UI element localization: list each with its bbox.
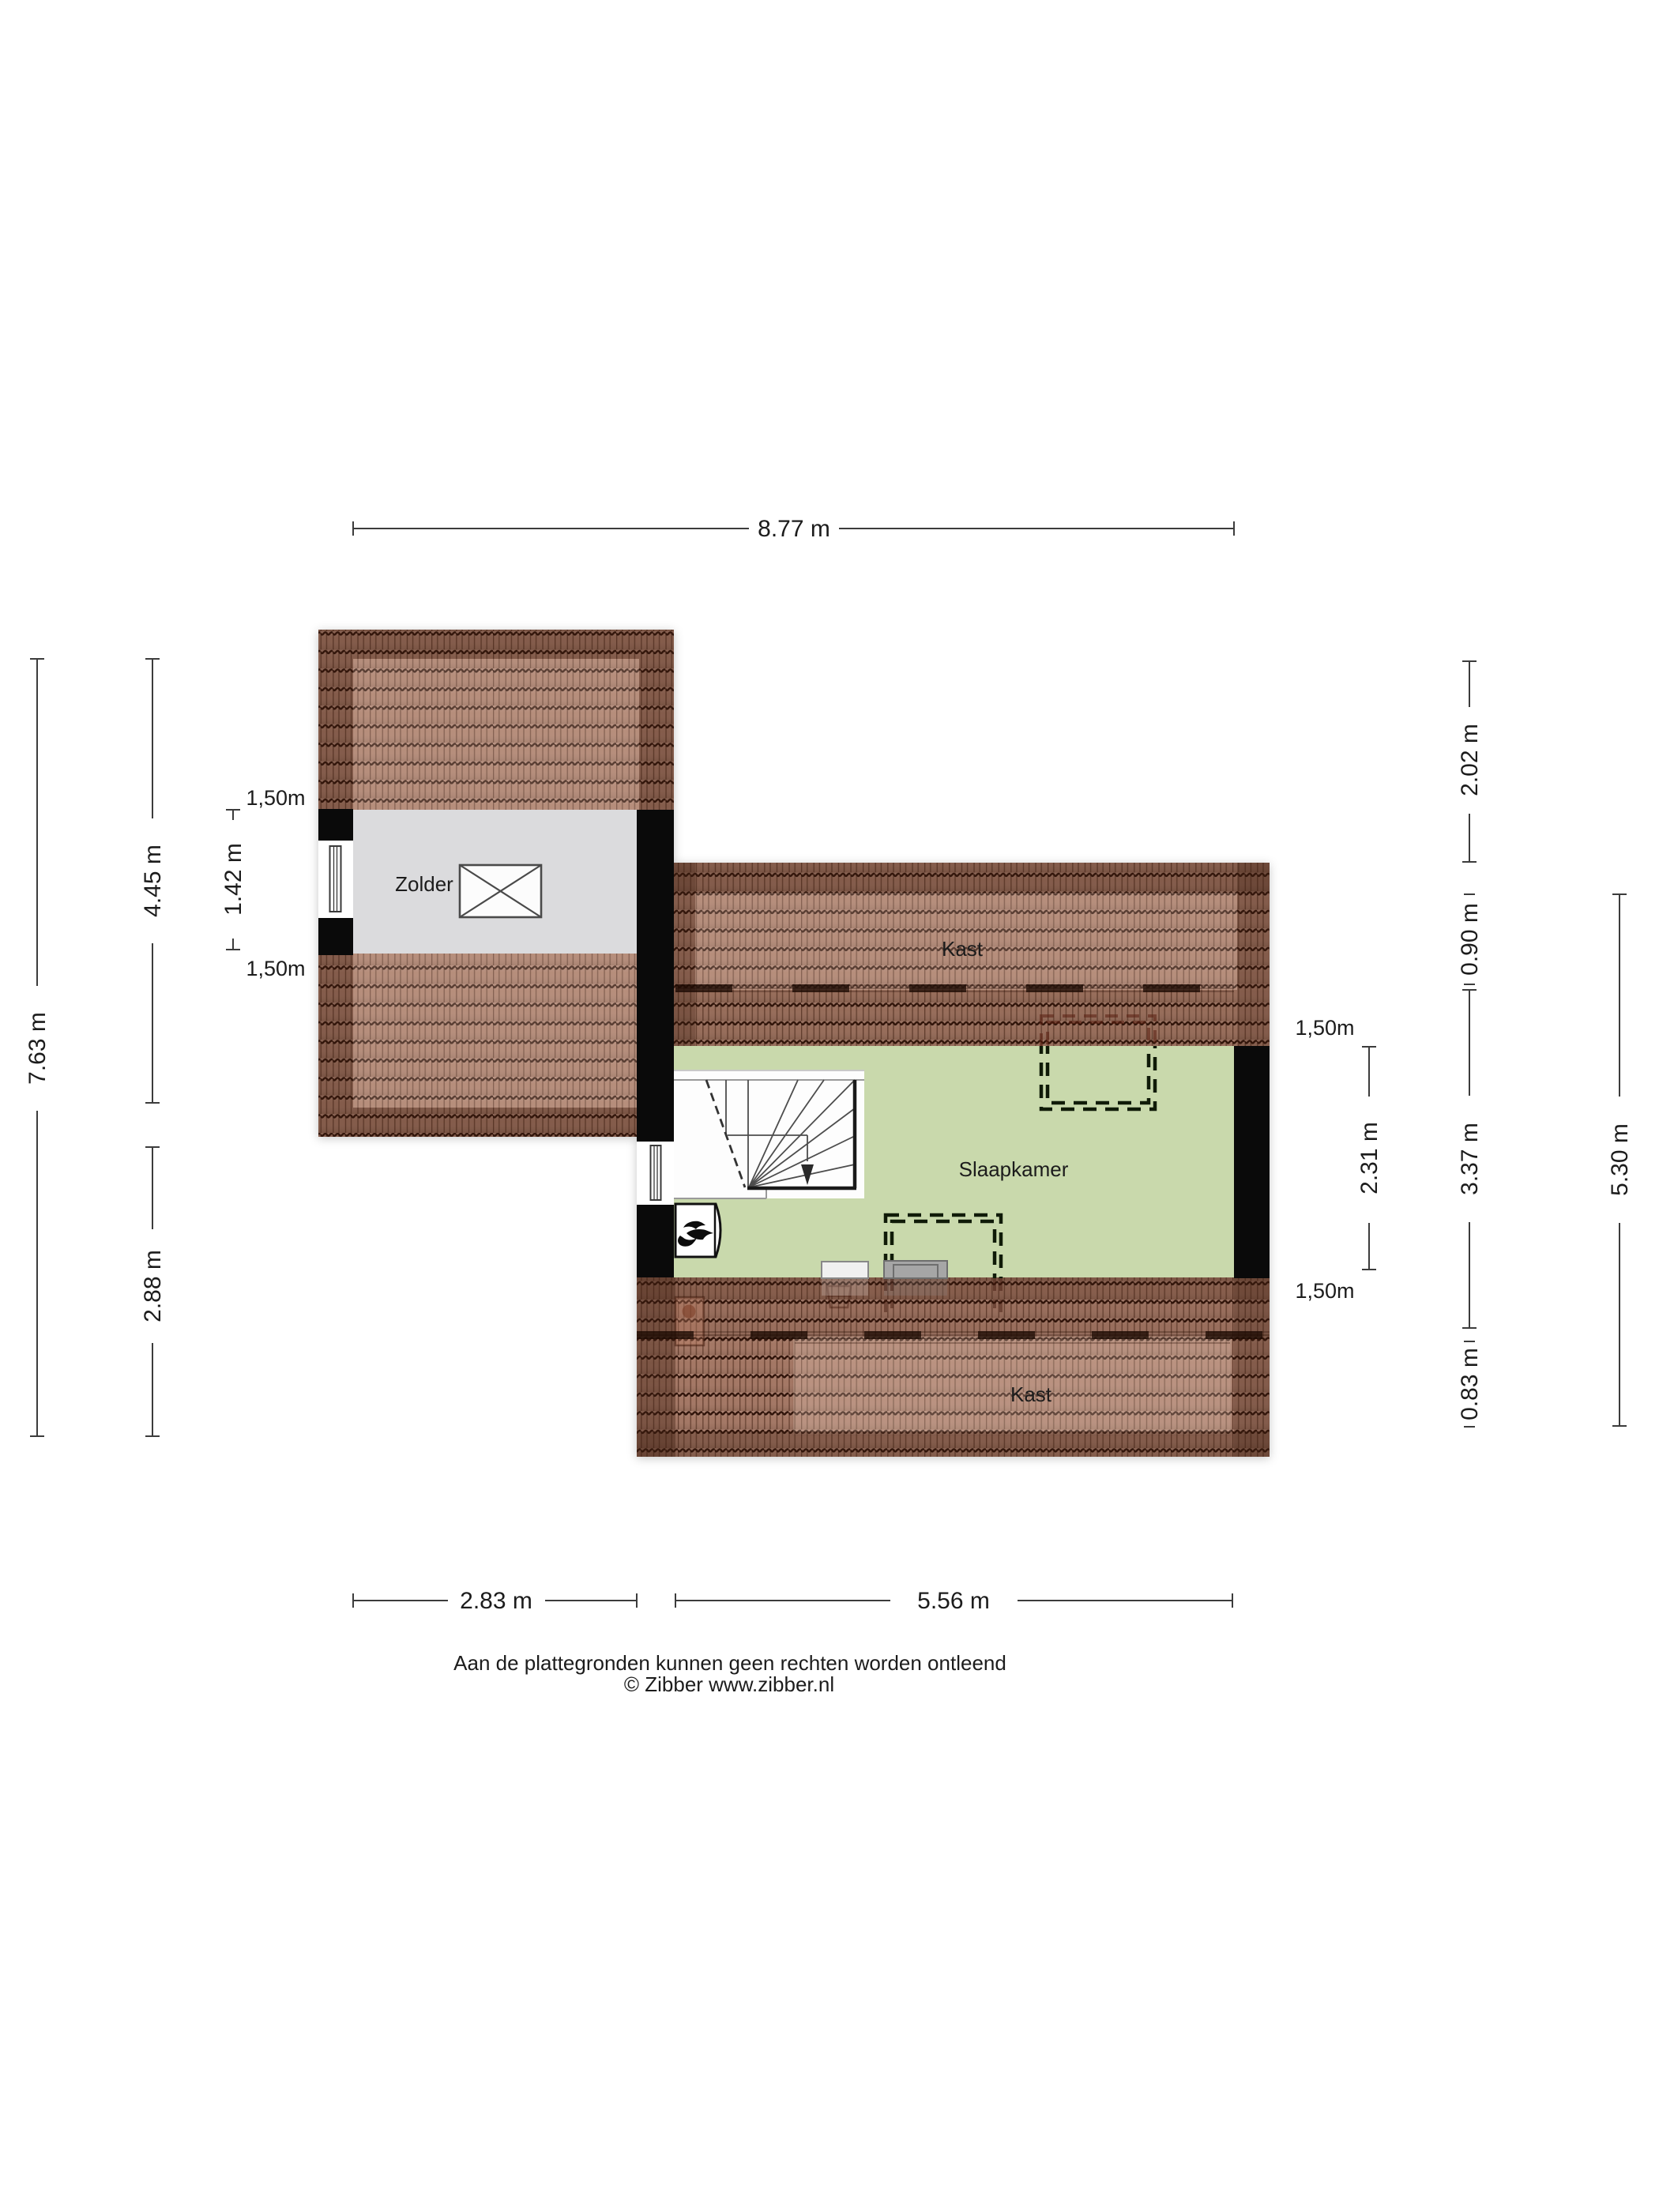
svg-text:2.83 m: 2.83 m: [460, 1588, 532, 1614]
svg-text:3.37 m: 3.37 m: [1457, 1123, 1483, 1195]
svg-text:1,50m: 1,50m: [246, 786, 305, 810]
svg-text:8.77 m: 8.77 m: [758, 516, 830, 542]
svg-text:1,50m: 1,50m: [1295, 1016, 1354, 1040]
svg-text:Kast: Kast: [1010, 1382, 1052, 1406]
svg-text:1,50m: 1,50m: [246, 957, 305, 980]
svg-text:Aan de plattegronden kunnen ge: Aan de plattegronden kunnen geen rechten…: [453, 1651, 1006, 1675]
svg-text:7.63 m: 7.63 m: [24, 1012, 51, 1085]
svg-text:2.31 m: 2.31 m: [1356, 1122, 1382, 1194]
svg-text:Zolder: Zolder: [395, 872, 453, 896]
svg-text:5.56 m: 5.56 m: [917, 1588, 990, 1614]
svg-text:2.02 m: 2.02 m: [1457, 724, 1483, 796]
svg-text:© Zibber www.zibber.nl: © Zibber www.zibber.nl: [624, 1672, 834, 1696]
svg-text:5.30 m: 5.30 m: [1607, 1123, 1633, 1196]
svg-text:1.42 m: 1.42 m: [220, 843, 246, 916]
svg-text:Kast: Kast: [942, 937, 984, 961]
svg-text:0.83 m: 0.83 m: [1457, 1348, 1483, 1420]
svg-text:4.45 m: 4.45 m: [140, 845, 166, 917]
svg-text:1,50m: 1,50m: [1295, 1279, 1354, 1303]
svg-text:Slaapkamer: Slaapkamer: [959, 1157, 1069, 1181]
svg-text:2.88 m: 2.88 m: [140, 1250, 166, 1322]
svg-text:0.90 m: 0.90 m: [1457, 903, 1483, 976]
